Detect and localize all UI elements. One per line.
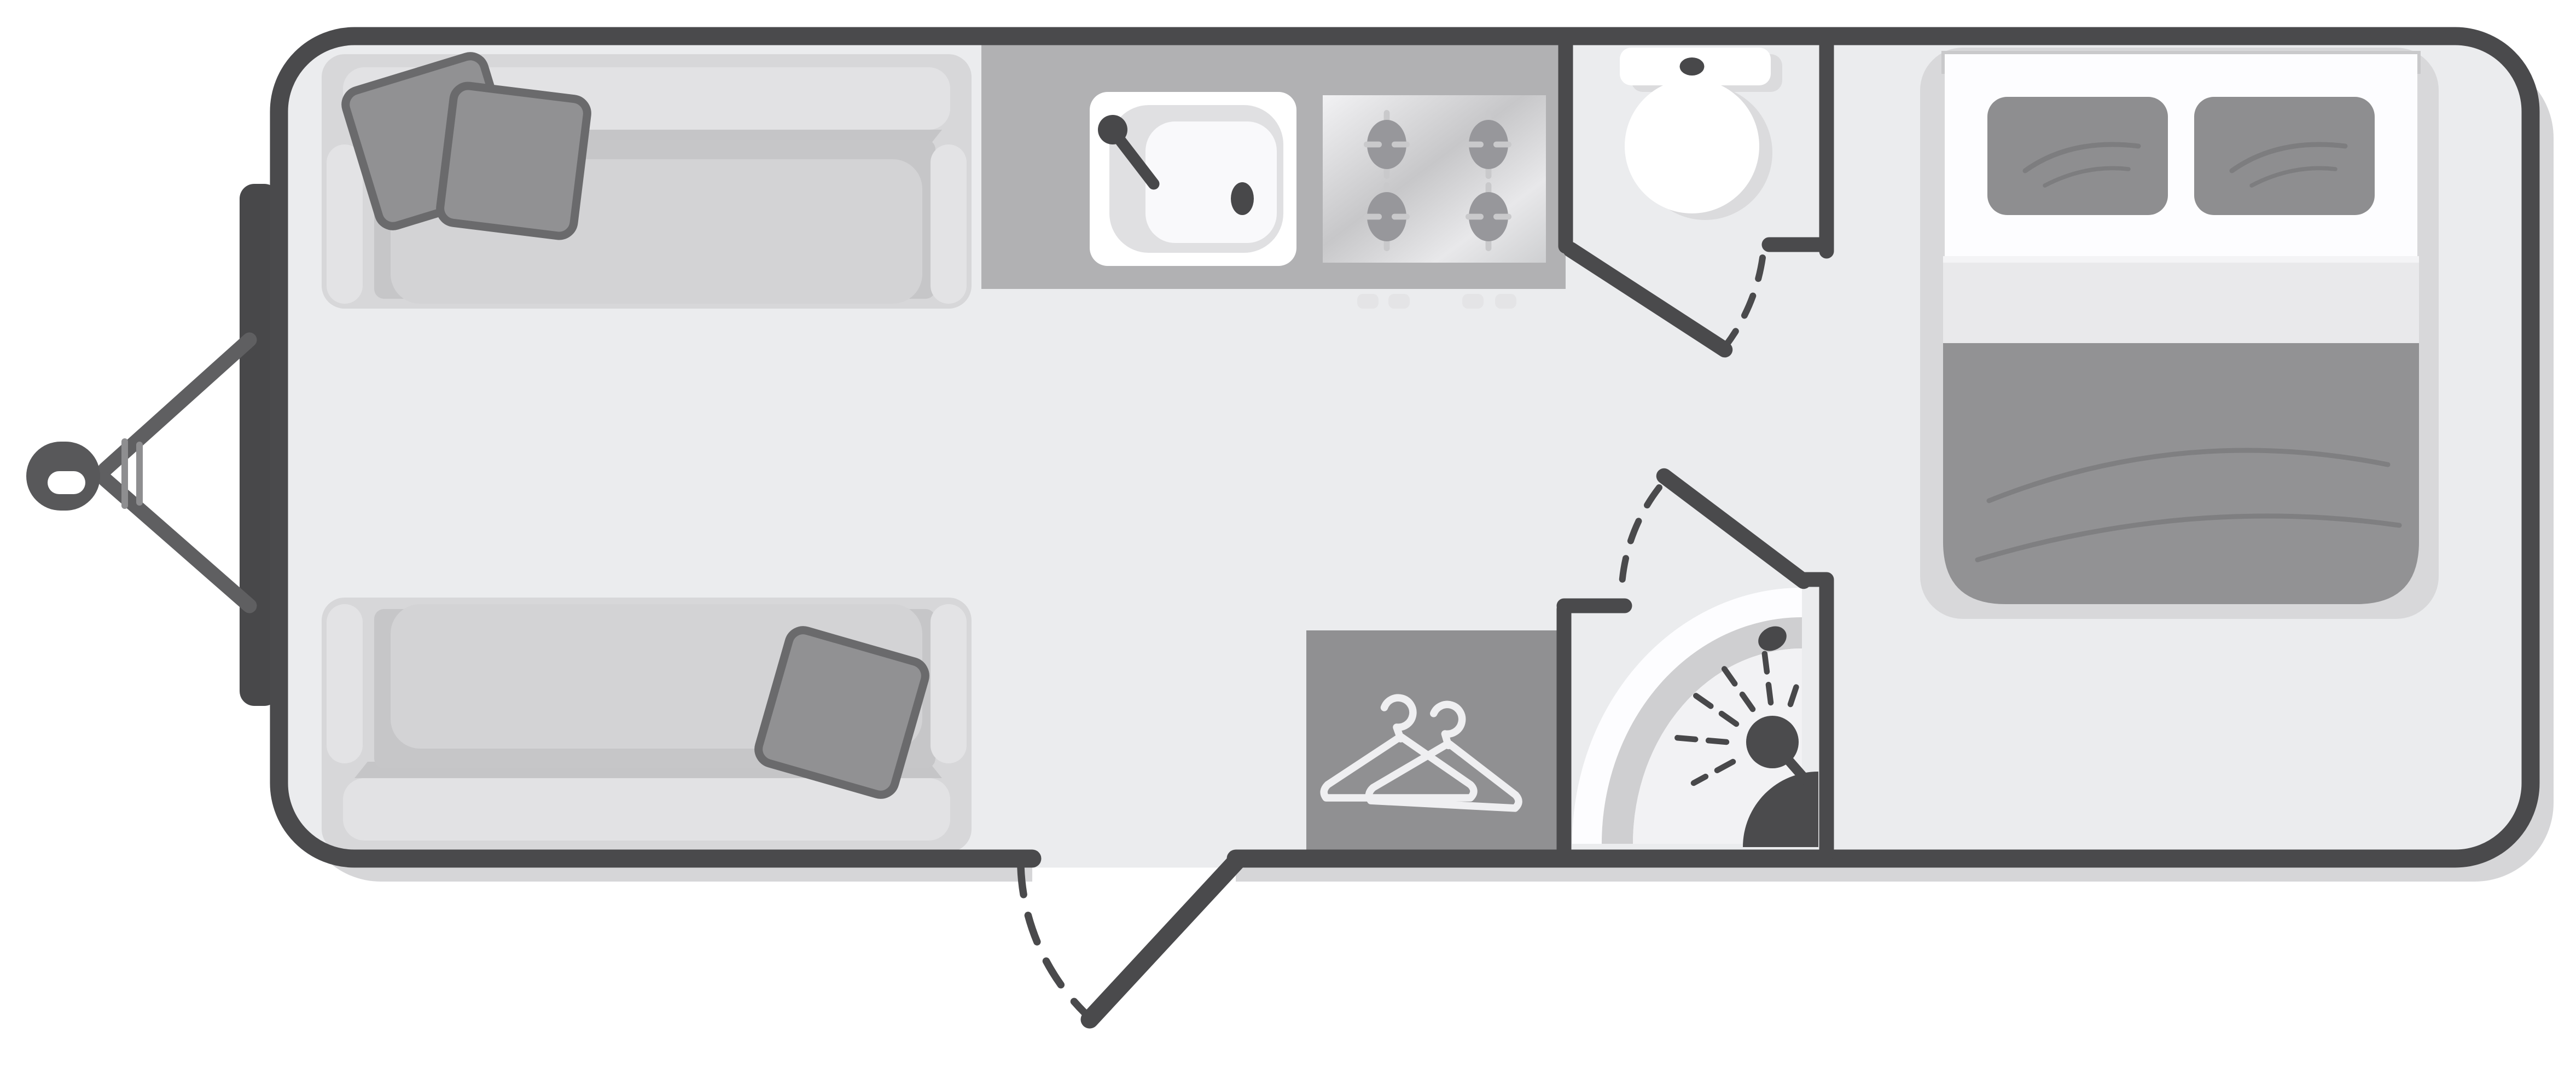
entry-door-opening-floor <box>1032 837 1236 868</box>
entry-door-jamb-left <box>1023 850 1041 868</box>
sofa-bottom <box>322 598 972 852</box>
tow-hitch <box>26 184 279 706</box>
wardrobe-cabinet <box>1306 630 1561 859</box>
sofa-armrest-right <box>931 604 967 763</box>
bed-fold-highlight <box>1943 256 2419 263</box>
cabinet-pull <box>1462 294 1484 309</box>
bedroom <box>1920 48 2439 619</box>
kitchen-sink <box>1090 92 1296 266</box>
sofa-armrest-left <box>327 144 363 304</box>
bed-fold-band <box>1943 256 2419 343</box>
cabinet-pull <box>1388 294 1410 309</box>
sofa-top <box>322 53 972 309</box>
toilet-flush-button <box>1679 57 1704 76</box>
toilet-bowl <box>1625 79 1759 213</box>
cabinet-pull <box>1357 294 1379 309</box>
cabinet-pull <box>1495 294 1516 309</box>
bed-pillow <box>2194 97 2375 215</box>
hob-panel <box>1323 95 1546 263</box>
duvet <box>1943 343 2419 604</box>
shower-head-icon <box>1746 716 1799 768</box>
tow-coupling-slot <box>48 471 85 494</box>
kitchen <box>981 36 1566 309</box>
wardrobe <box>1306 630 1561 859</box>
sink-drain <box>1231 182 1254 215</box>
sink-bowl-inner <box>1145 121 1277 243</box>
bed-pillow <box>1987 97 2168 215</box>
hob <box>1323 95 1546 263</box>
caravan-floor-plan <box>0 0 2576 1072</box>
scatter-cushion <box>439 84 589 237</box>
sofa-armrest-left <box>327 604 363 763</box>
sofa-armrest-right <box>931 144 967 304</box>
